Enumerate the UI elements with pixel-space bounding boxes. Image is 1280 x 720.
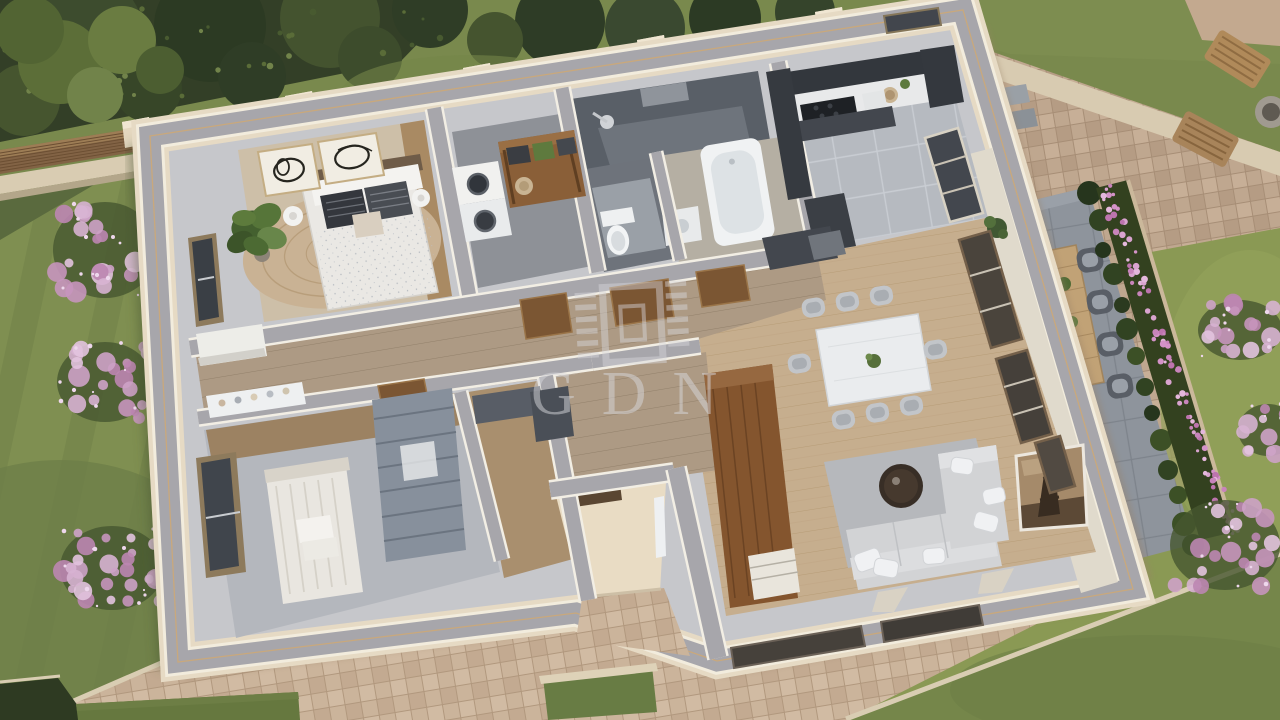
svg-text:GDN: GDN	[531, 360, 743, 428]
